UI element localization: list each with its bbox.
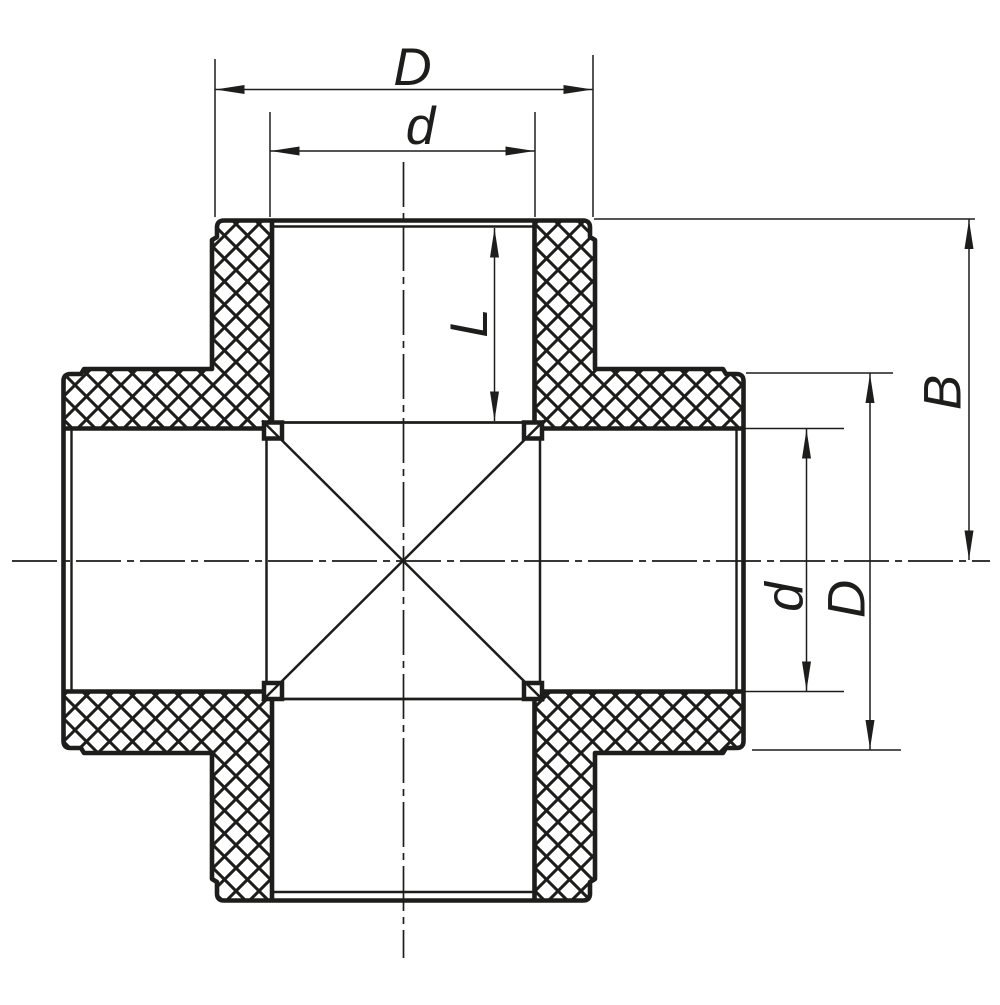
svg-text:L: L: [440, 308, 499, 337]
svg-text:d: d: [406, 97, 437, 156]
svg-text:B: B: [914, 375, 973, 410]
svg-text:d: d: [756, 581, 815, 612]
svg-text:D: D: [818, 580, 877, 618]
svg-text:D: D: [393, 38, 431, 97]
